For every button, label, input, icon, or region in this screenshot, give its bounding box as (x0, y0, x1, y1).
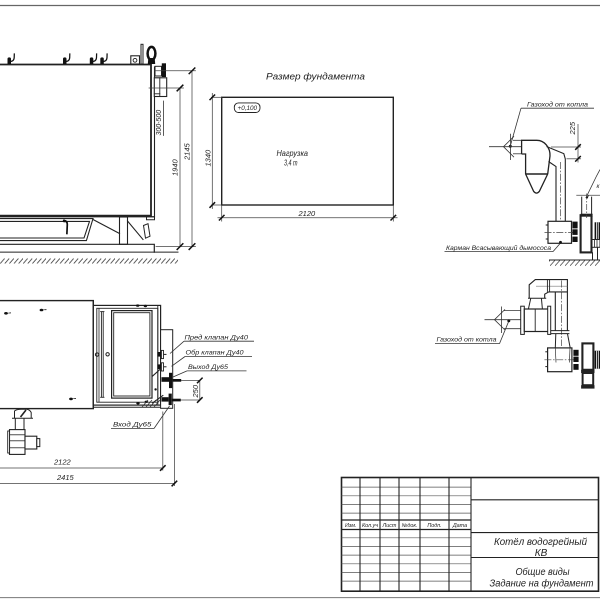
svg-text:Подп.: Подп. (427, 523, 441, 529)
svg-text:КВ: КВ (535, 548, 548, 559)
svg-text:Лист: Лист (382, 523, 397, 529)
svg-text:Обр клапан Ду40: Обр клапан Ду40 (186, 349, 244, 357)
svg-text:Размер фундамента: Размер фундамента (266, 72, 365, 82)
svg-text:Нагрузка: Нагрузка (277, 149, 309, 158)
svg-text:Пред клапан Ду40: Пред клапан Ду40 (185, 333, 249, 341)
svg-text:250: 250 (191, 384, 200, 398)
svg-text:к: к (597, 183, 600, 190)
svg-text:Изм.: Изм. (345, 523, 357, 529)
svg-text:Вход Ду65: Вход Ду65 (113, 421, 152, 429)
svg-text:1340: 1340 (204, 149, 213, 167)
svg-text:+0,100: +0,100 (238, 105, 258, 112)
svg-text:№док.: №док. (402, 523, 418, 529)
svg-text:2415: 2415 (56, 473, 75, 482)
svg-text:3,4 т: 3,4 т (284, 159, 298, 168)
svg-text:Котёл водогрейный: Котёл водогрейный (494, 537, 587, 548)
svg-text:2145: 2145 (183, 142, 192, 161)
svg-text:Кол.уч: Кол.уч (362, 523, 378, 529)
svg-text:1940: 1940 (171, 158, 180, 176)
svg-text:Карман Всасывающий дымососа: Карман Всасывающий дымососа (446, 244, 551, 252)
svg-text:Общие виды: Общие виды (516, 566, 571, 578)
svg-text:Дата: Дата (452, 523, 467, 529)
svg-text:Выход Ду65: Выход Ду65 (188, 363, 228, 371)
svg-text:225: 225 (568, 121, 577, 135)
svg-text:300-500: 300-500 (156, 110, 163, 136)
svg-text:2120: 2120 (298, 209, 317, 218)
svg-text:Газоход от котла: Газоход от котла (527, 101, 588, 109)
svg-text:Газоход от котла: Газоход от котла (437, 336, 497, 344)
svg-text:Задание на фундамент: Задание на фундамент (490, 577, 594, 589)
svg-text:2122: 2122 (53, 457, 72, 466)
